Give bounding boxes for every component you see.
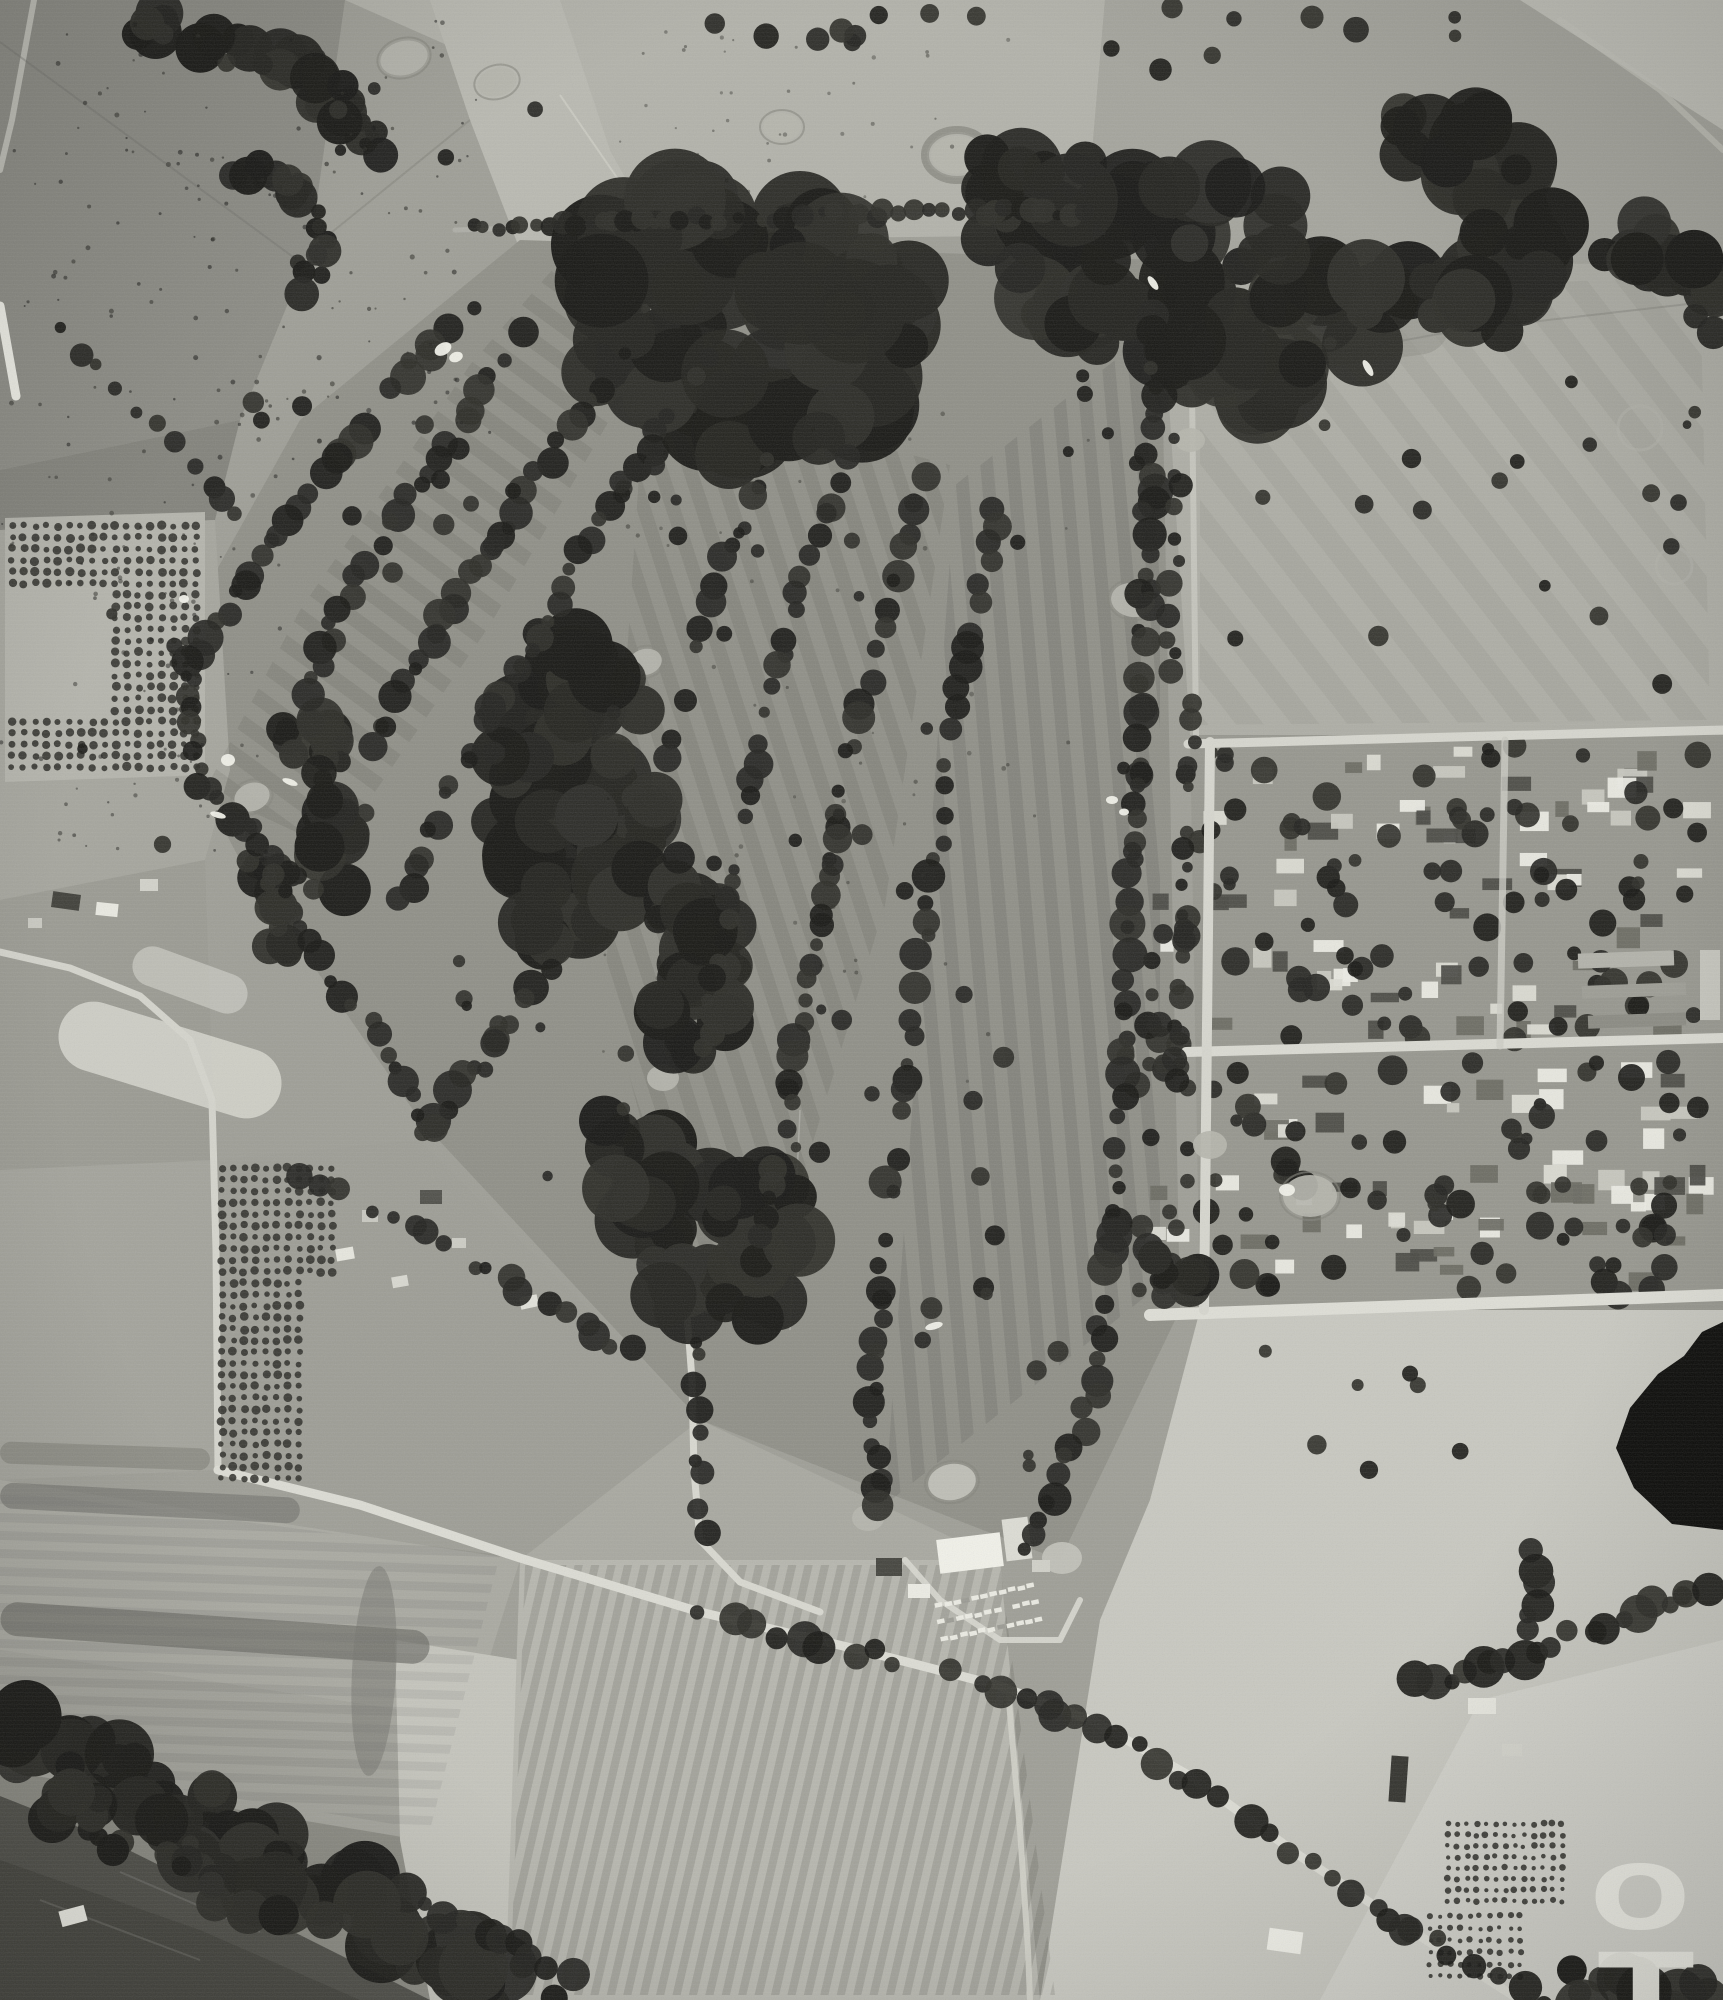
aerial-photo-canvas: OT (0, 0, 1723, 2000)
aerial-photograph: OT (0, 0, 1723, 2000)
film-effects-layer (0, 0, 1723, 2000)
vignette (0, 0, 1723, 2000)
